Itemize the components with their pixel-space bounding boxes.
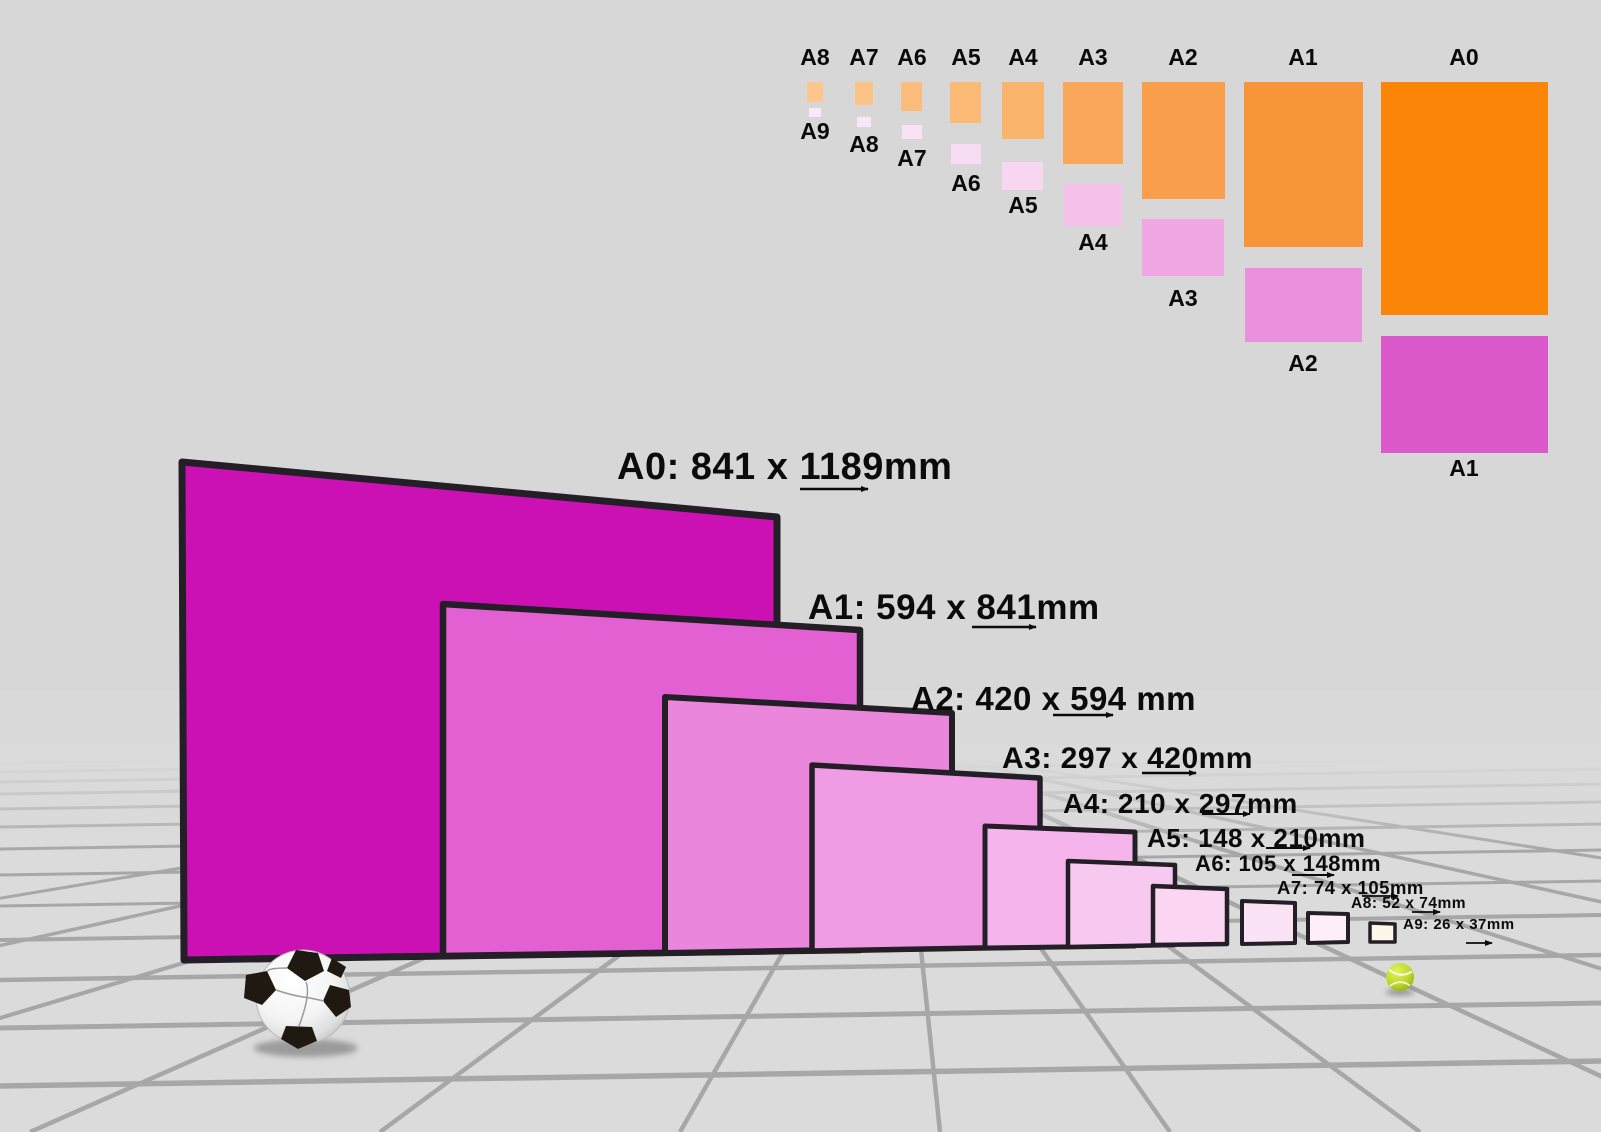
mini-a4-landscape-rect (1064, 184, 1122, 226)
sheet-a6 (1153, 886, 1227, 945)
mini-a5-portrait-rect (950, 82, 981, 123)
mini-a7-landscape-rect (902, 125, 922, 139)
mini-label-a5-bottom: A5 (981, 194, 1065, 217)
sheet-label-a0: A0: 841 x 1189mm (617, 448, 952, 486)
sheet-label-a1: A1: 594 x 841mm (808, 590, 1100, 625)
sheet-label-a4: A4: 210 x 297mm (1063, 790, 1298, 818)
mini-a9-landscape-rect (809, 108, 821, 117)
mini-label-a4-bottom: A4 (1051, 231, 1135, 254)
sheet-label-a9: A9: 26 x 37mm (1403, 917, 1515, 932)
mini-label-a3-top: A3 (1051, 46, 1135, 69)
sheet-label-a3: A3: 297 x 420mm (1002, 744, 1253, 774)
paper-sizes-infographic: A8 A9 A7 A8 A6 A7 A5 A6 A4 A5 A3 A4 A2 A… (0, 0, 1601, 1132)
sheet-label-a6: A6: 105 x 148mm (1195, 853, 1381, 875)
mini-a8-landscape-rect (857, 117, 871, 127)
mini-a0-portrait-rect (1381, 82, 1548, 315)
mini-a6-landscape-rect (951, 144, 981, 164)
sheet-label-a5: A5: 148 x 210mm (1147, 825, 1366, 851)
mini-a4-portrait-rect (1002, 82, 1044, 139)
tennis-ball (1386, 963, 1414, 996)
mini-a3-landscape-rect (1142, 219, 1224, 276)
mini-a7-portrait-rect (855, 82, 873, 105)
mini-label-a2-bottom: A2 (1261, 352, 1345, 375)
mini-a1-landscape-rect (1381, 336, 1548, 453)
mini-label-a1-top: A1 (1261, 46, 1345, 69)
mini-a3-portrait-rect (1063, 82, 1123, 164)
mini-a5-landscape-rect (1002, 162, 1043, 190)
sheet-a8 (1308, 913, 1348, 943)
mini-label-a2-top: A2 (1141, 46, 1225, 69)
mini-a6-portrait-rect (901, 82, 922, 111)
sheet-label-a2: A2: 420 x 594 mm (911, 682, 1196, 715)
mini-label-a3-bottom: A3 (1141, 287, 1225, 310)
mini-label-a7-bottom: A7 (870, 147, 954, 170)
mini-label-a6-bottom: A6 (924, 172, 1008, 195)
mini-label-a1-bottom: A1 (1422, 457, 1506, 480)
mini-label-a0-top: A0 (1422, 46, 1506, 69)
mini-a2-portrait-rect (1142, 82, 1225, 199)
sheet-label-a8: A8: 52 x 74mm (1351, 896, 1466, 912)
mini-a1-portrait-rect (1244, 82, 1363, 247)
sheet-a7 (1242, 901, 1295, 944)
mini-a8-portrait-rect (807, 82, 823, 102)
sheet-a9 (1370, 923, 1395, 942)
mini-a2-landscape-rect (1245, 268, 1362, 342)
